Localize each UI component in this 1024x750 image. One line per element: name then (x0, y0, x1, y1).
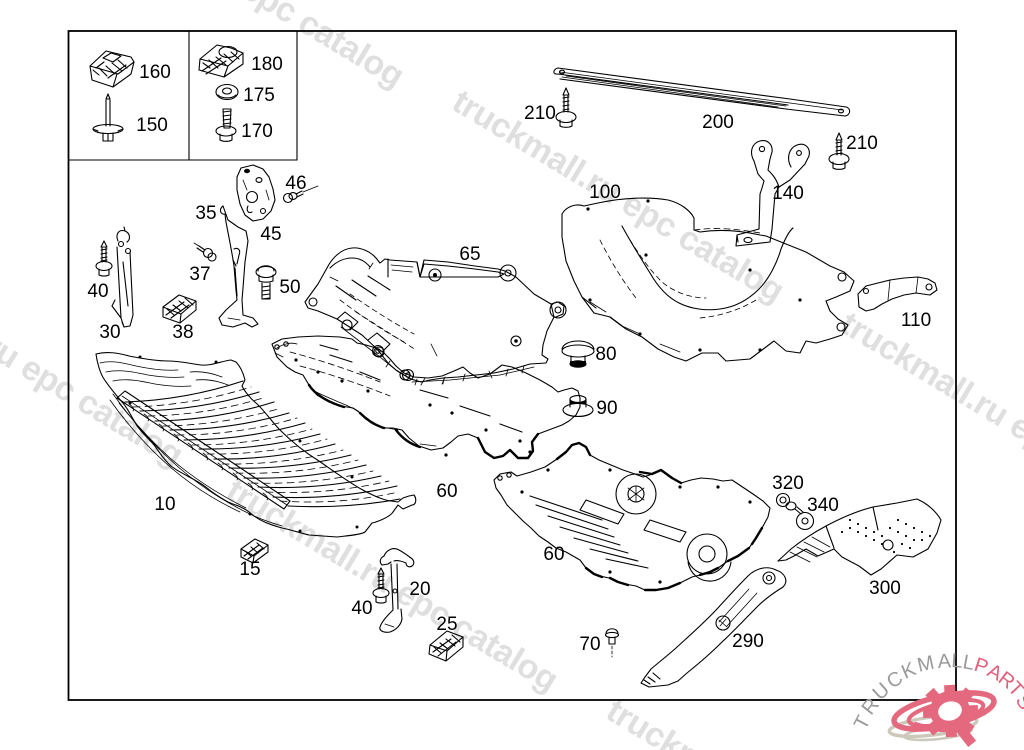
svg-text:38: 38 (172, 322, 193, 343)
svg-text:40: 40 (87, 281, 108, 302)
svg-text:300: 300 (869, 578, 901, 599)
svg-text:37: 37 (189, 264, 210, 285)
svg-text:110: 110 (901, 310, 931, 331)
svg-text:180: 180 (251, 54, 283, 75)
svg-text:50: 50 (279, 277, 300, 298)
svg-text:40: 40 (351, 598, 372, 619)
svg-text:150: 150 (136, 115, 168, 136)
svg-text:210: 210 (846, 133, 878, 154)
svg-text:200: 200 (702, 112, 734, 133)
svg-text:320: 320 (772, 473, 804, 494)
svg-text:80: 80 (595, 344, 616, 365)
svg-text:140: 140 (772, 183, 804, 204)
svg-text:46: 46 (285, 173, 306, 194)
svg-text:70: 70 (579, 634, 600, 655)
svg-text:20: 20 (409, 579, 430, 600)
svg-text:35: 35 (195, 203, 216, 224)
svg-text:170: 170 (241, 121, 273, 142)
svg-text:45: 45 (260, 224, 281, 245)
svg-text:15: 15 (239, 559, 260, 580)
svg-text:340: 340 (807, 495, 839, 516)
svg-text:60: 60 (436, 481, 457, 502)
svg-text:210: 210 (524, 103, 556, 124)
svg-text:290: 290 (732, 631, 764, 652)
svg-text:10: 10 (154, 494, 175, 515)
svg-text:30: 30 (99, 322, 120, 343)
svg-text:160: 160 (139, 62, 171, 83)
svg-text:175: 175 (243, 85, 275, 106)
svg-text:90: 90 (596, 398, 617, 419)
svg-text:65: 65 (459, 244, 480, 265)
svg-text:25: 25 (436, 614, 457, 635)
